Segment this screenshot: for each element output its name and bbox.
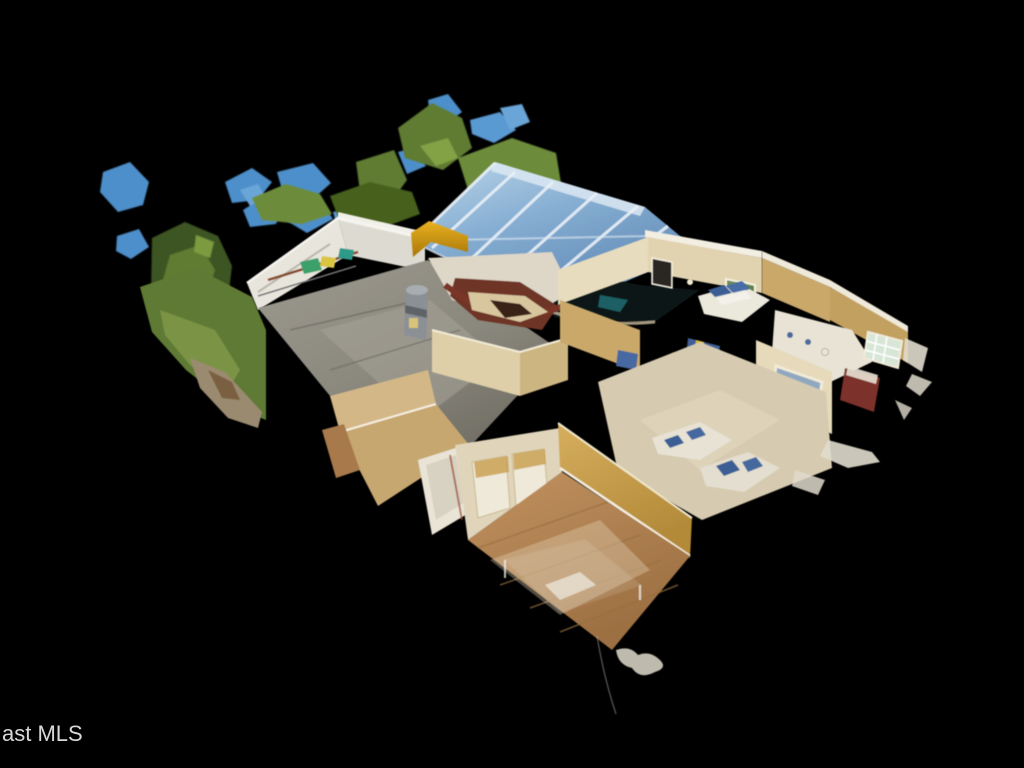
mls-listing-photo: ast MLS	[0, 0, 1024, 768]
window-opening	[652, 258, 672, 288]
water-heater	[404, 285, 428, 340]
dollhouse-3d-view: ast MLS	[0, 0, 1024, 768]
watermark: ast MLS	[2, 721, 83, 746]
